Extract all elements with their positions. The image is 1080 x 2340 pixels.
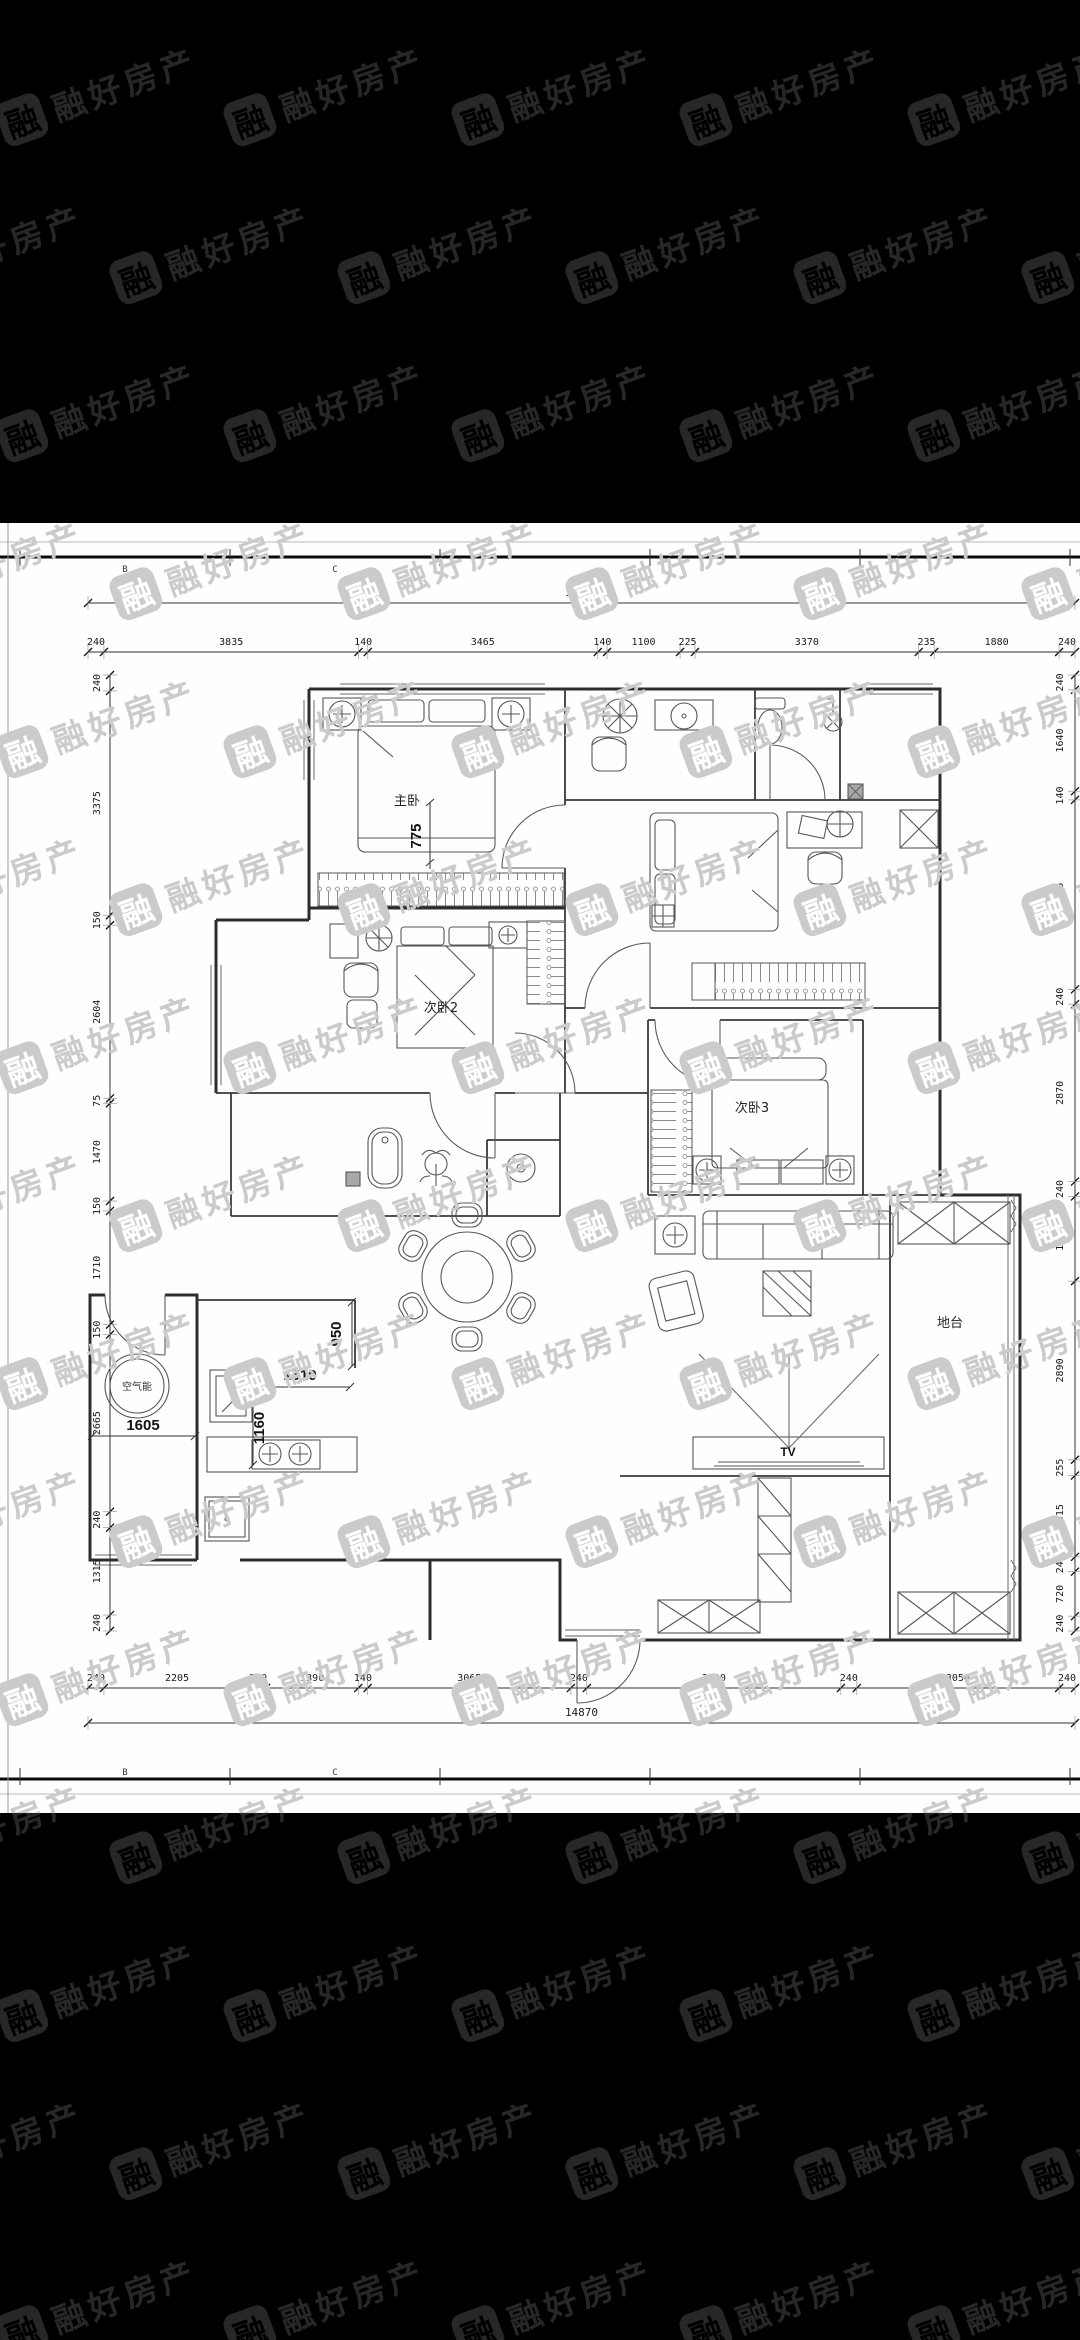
watermark-logo-icon: 融 xyxy=(676,1986,735,2045)
svg-text:240: 240 xyxy=(87,1673,105,1684)
watermark: 融融好房产 xyxy=(562,192,774,308)
svg-text:1470: 1470 xyxy=(92,1140,103,1164)
watermark: 融融好房产 xyxy=(676,1930,888,2046)
watermark-logo-icon: 融 xyxy=(334,1828,393,1887)
watermark: 融融好房产 xyxy=(448,34,660,150)
svg-text:235: 235 xyxy=(917,637,935,648)
svg-text:3370: 3370 xyxy=(795,637,819,648)
svg-text:2205: 2205 xyxy=(165,1673,189,1684)
svg-text:240: 240 xyxy=(1055,1615,1066,1633)
watermark-text: 融好房产 xyxy=(273,34,432,131)
watermark-text: 融好房产 xyxy=(843,192,1002,289)
vanity-room xyxy=(592,699,713,771)
svg-text:225: 225 xyxy=(679,637,697,648)
svg-text:1640: 1640 xyxy=(1055,728,1066,752)
svg-text:240: 240 xyxy=(92,674,103,692)
watermark: 融融好房产 xyxy=(106,192,318,308)
watermark-layer: 融融好房产融融好房产融融好房产融融好房产融融好房产融融好房产融融好房产融融好房产… xyxy=(0,1813,1080,2340)
watermark-logo-icon: 融 xyxy=(676,406,735,465)
watermark-logo-icon: 融 xyxy=(904,406,963,465)
watermark-logo-icon: 融 xyxy=(0,406,51,465)
watermark: 融融好房产 xyxy=(448,350,660,466)
watermark-text: 融好房产 xyxy=(501,2246,660,2340)
watermark: 融融好房产 xyxy=(0,1930,204,2046)
bedroom3-furniture xyxy=(693,1058,854,1184)
watermark: 融融好房产 xyxy=(1018,2088,1080,2204)
svg-text:1390: 1390 xyxy=(300,1673,324,1684)
platform-cabinets xyxy=(898,1202,1010,1634)
svg-text:240: 240 xyxy=(1055,988,1066,1006)
watermark: 融融好房产 xyxy=(676,350,888,466)
watermark: 融融好房产 xyxy=(106,2088,318,2204)
watermark: 融融好房产 xyxy=(0,508,90,523)
svg-text:1315: 1315 xyxy=(1055,1504,1066,1528)
watermark-logo-icon: 融 xyxy=(790,1828,849,1887)
svg-text:3835: 3835 xyxy=(219,637,243,648)
svg-text:240: 240 xyxy=(249,1673,267,1684)
tv-label: TV xyxy=(780,1445,795,1459)
watermark-logo-icon: 融 xyxy=(676,90,735,149)
watermark-logo-icon: 融 xyxy=(904,1986,963,2045)
watermark-text: 融好房产 xyxy=(615,2088,774,2185)
watermark-logo-icon: 融 xyxy=(0,90,51,149)
svg-text:3050: 3050 xyxy=(946,1673,970,1684)
watermark-text: 融好房产 xyxy=(1071,508,1080,523)
watermark: 融融好房产 xyxy=(562,1813,774,1888)
watermark-text: 融好房产 xyxy=(843,1813,1002,1869)
watermark-logo-icon: 融 xyxy=(562,2144,621,2203)
watermark-text: 融好房产 xyxy=(45,34,204,131)
watermark: 融融好房产 xyxy=(1018,508,1080,523)
watermark-text: 融好房产 xyxy=(0,508,90,523)
wardrobes-v xyxy=(527,921,692,1192)
watermark-text: 融好房产 xyxy=(387,2088,546,2185)
svg-text:255: 255 xyxy=(1055,1459,1066,1477)
watermark: 融融好房产 xyxy=(448,1930,660,2046)
watermark-text: 融好房产 xyxy=(729,350,888,447)
watermark: 融融好房产 xyxy=(0,1813,90,1888)
svg-text:C: C xyxy=(332,565,337,575)
watermark-logo-icon: 融 xyxy=(0,2302,51,2340)
watermark: 融融好房产 xyxy=(676,34,888,150)
watermark-text: 融好房产 xyxy=(45,1930,204,2027)
heat-pump-label: 空气能 xyxy=(122,1380,152,1393)
svg-text:140: 140 xyxy=(354,637,372,648)
master-door-dim xyxy=(426,799,434,869)
watermark-text: 融好房产 xyxy=(387,1813,546,1869)
svg-text:3465: 3465 xyxy=(471,637,495,648)
svg-text:2890: 2890 xyxy=(1055,1358,1066,1382)
watermark-logo-icon: 融 xyxy=(676,2302,735,2340)
watermark: 融融好房产 xyxy=(334,192,546,308)
watermark: 融融好房产 xyxy=(220,1930,432,2046)
bathroom2-fixtures xyxy=(346,1128,535,1188)
svg-text:14870: 14870 xyxy=(565,1706,598,1719)
watermark-text: 融好房产 xyxy=(0,192,90,289)
watermark-logo-icon: 融 xyxy=(334,2144,393,2203)
svg-text:720: 720 xyxy=(1055,1585,1066,1603)
watermark: 融融好房产 xyxy=(334,1813,546,1888)
svg-text:240: 240 xyxy=(92,1511,103,1529)
watermark-layer: 融融好房产融融好房产融融好房产融融好房产融融好房产融融好房产融融好房产融融好房产… xyxy=(0,0,1080,523)
watermark-text: 融好房产 xyxy=(615,192,774,289)
svg-text:240: 240 xyxy=(1055,673,1066,691)
watermark-text: 融好房产 xyxy=(273,350,432,447)
room-label-bedroom2: 次卧2 xyxy=(424,1000,458,1016)
watermark: 融融好房产 xyxy=(904,1930,1080,2046)
svg-text:240: 240 xyxy=(570,1673,588,1684)
svg-text:1880: 1880 xyxy=(985,637,1009,648)
watermark: 融融好房产 xyxy=(904,2246,1080,2340)
bathroom-top xyxy=(755,698,863,799)
room-label-bedroom3: 次卧3 xyxy=(735,1100,769,1116)
svg-text:140: 140 xyxy=(354,1673,372,1684)
watermark-logo-icon: 融 xyxy=(1018,248,1077,307)
watermark-text: 融好房产 xyxy=(1071,2088,1080,2185)
watermark: 融融好房产 xyxy=(790,192,1002,308)
floor-plan-image[interactable]: BBCC xyxy=(0,523,1080,1813)
phone-screen: 融融好房产融融好房产融融好房产融融好房产融融好房产融融好房产融融好房产融融好房产… xyxy=(0,0,1080,2340)
watermark-logo-icon: 融 xyxy=(904,2302,963,2340)
watermark-text: 融好房产 xyxy=(615,1813,774,1869)
watermark-text: 融好房产 xyxy=(957,350,1080,447)
watermark: 融融好房产 xyxy=(562,2088,774,2204)
watermark-text: 融好房产 xyxy=(843,2088,1002,2185)
svg-text:75: 75 xyxy=(92,1095,103,1107)
watermark-text: 融好房产 xyxy=(729,34,888,131)
entry-cabinets xyxy=(658,1478,791,1633)
svg-text:2870: 2870 xyxy=(1055,1081,1066,1105)
svg-text:C: C xyxy=(332,1768,337,1778)
watermark-text: 融好房产 xyxy=(1071,1813,1080,1869)
watermark: 融融好房产 xyxy=(562,508,774,523)
watermark-text: 融好房产 xyxy=(501,34,660,131)
svg-text:140: 140 xyxy=(593,637,611,648)
svg-text:2604: 2604 xyxy=(92,1000,103,1024)
watermark-text: 融好房产 xyxy=(957,1930,1080,2027)
watermark-logo-icon: 融 xyxy=(106,1828,165,1887)
watermark: 融融好房产 xyxy=(790,508,1002,523)
watermark: 融融好房产 xyxy=(106,508,318,523)
bedroom2-furniture xyxy=(330,922,527,1048)
watermark: 融融好房产 xyxy=(676,2246,888,2340)
watermark: 融融好房产 xyxy=(220,2246,432,2340)
watermark: 融融好房产 xyxy=(1018,1813,1080,1888)
watermark-logo-icon: 融 xyxy=(220,90,279,149)
watermark-logo-icon: 融 xyxy=(562,248,621,307)
watermark-text: 融好房产 xyxy=(615,508,774,523)
watermark-text: 融好房产 xyxy=(957,34,1080,131)
svg-text:150: 150 xyxy=(92,911,103,929)
watermark-logo-icon: 融 xyxy=(0,1986,51,2045)
svg-text:1315: 1315 xyxy=(92,1559,103,1583)
dimension-annotations: 1487024038351403465140110022533702351880… xyxy=(84,586,1080,1730)
watermark: 融融好房产 xyxy=(0,350,204,466)
watermark-logo-icon: 融 xyxy=(1018,1828,1077,1887)
watermark-logo-icon: 融 xyxy=(904,90,963,149)
watermark-text: 融好房产 xyxy=(387,192,546,289)
svg-text:140: 140 xyxy=(1055,787,1066,805)
watermark: 融融好房产 xyxy=(904,350,1080,466)
svg-text:240: 240 xyxy=(92,1614,103,1632)
watermark-text: 融好房产 xyxy=(387,508,546,523)
svg-text:3830: 3830 xyxy=(702,1673,726,1684)
watermark: 融融好房产 xyxy=(220,34,432,150)
svg-text:B: B xyxy=(122,1768,127,1778)
svg-text:150: 150 xyxy=(92,1197,103,1215)
svg-text:1370: 1370 xyxy=(1055,1227,1066,1251)
dim-1510: 1510 xyxy=(283,1367,316,1384)
watermark: 融融好房产 xyxy=(790,2088,1002,2204)
watermark-text: 融好房产 xyxy=(159,1813,318,1869)
watermark-text: 融好房产 xyxy=(159,2088,318,2185)
watermark-text: 融好房产 xyxy=(729,2246,888,2340)
watermark: 融融好房产 xyxy=(0,192,90,308)
watermark-text: 融好房产 xyxy=(45,350,204,447)
watermark-logo-icon: 融 xyxy=(220,2302,279,2340)
watermark-text: 融好房产 xyxy=(957,2246,1080,2340)
watermark-text: 融好房产 xyxy=(273,1930,432,2027)
letterbox-top: 融融好房产融融好房产融融好房产融融好房产融融好房产融融好房产融融好房产融融好房产… xyxy=(0,0,1080,523)
watermark: 融融好房产 xyxy=(220,350,432,466)
watermark-text: 融好房产 xyxy=(1071,192,1080,289)
svg-text:B: B xyxy=(122,565,127,575)
shelf xyxy=(692,963,715,1000)
living-room-furniture xyxy=(647,1211,893,1469)
svg-text:240: 240 xyxy=(87,637,105,648)
dim-775: 775 xyxy=(408,823,425,848)
svg-text:3375: 3375 xyxy=(92,791,103,815)
svg-text:1100: 1100 xyxy=(632,637,656,648)
svg-text:14870: 14870 xyxy=(565,586,598,599)
svg-text:240: 240 xyxy=(1055,1180,1066,1198)
dim-1605: 1605 xyxy=(126,1417,159,1434)
watermark: 融融好房产 xyxy=(0,2246,204,2340)
watermark: 融融好房产 xyxy=(334,2088,546,2204)
room-label-master: 主卧 xyxy=(394,794,420,809)
watermark: 融融好房产 xyxy=(448,2246,660,2340)
floor-plan-drawing: BBCC xyxy=(0,523,1080,1813)
watermark-logo-icon: 融 xyxy=(790,248,849,307)
watermark-logo-icon: 融 xyxy=(106,2144,165,2203)
watermark-text: 融好房产 xyxy=(159,192,318,289)
room-label-platform: 地台 xyxy=(937,1316,963,1331)
master-bedroom-furniture xyxy=(323,698,530,852)
svg-text:3065: 3065 xyxy=(457,1673,481,1684)
svg-text:1710: 1710 xyxy=(92,1256,103,1280)
watermark-logo-icon: 融 xyxy=(220,1986,279,2045)
watermark-text: 融好房产 xyxy=(0,1813,90,1869)
dim-950: 950 xyxy=(328,1321,345,1346)
watermark-text: 融好房产 xyxy=(843,508,1002,523)
watermark-logo-icon: 融 xyxy=(562,1828,621,1887)
watermark-logo-icon: 融 xyxy=(220,406,279,465)
watermark-text: 融好房产 xyxy=(729,1930,888,2027)
svg-text:2665: 2665 xyxy=(92,1411,103,1435)
watermark-text: 融好房产 xyxy=(273,2246,432,2340)
watermark-logo-icon: 融 xyxy=(448,2302,507,2340)
watermark: 融融好房产 xyxy=(334,508,546,523)
watermark: 融融好房产 xyxy=(106,1813,318,1888)
svg-text:3065: 3065 xyxy=(1055,883,1066,907)
letterbox-bottom: 融融好房产融融好房产融融好房产融融好房产融融好房产融融好房产融融好房产融融好房产… xyxy=(0,1813,1080,2340)
svg-text:240: 240 xyxy=(840,1673,858,1684)
svg-text:150: 150 xyxy=(92,1321,103,1339)
watermark-logo-icon: 融 xyxy=(106,248,165,307)
watermark-text: 融好房产 xyxy=(159,508,318,523)
watermark-logo-icon: 融 xyxy=(448,90,507,149)
watermark-logo-icon: 融 xyxy=(1018,2144,1077,2203)
watermark-text: 融好房产 xyxy=(45,2246,204,2340)
watermark-logo-icon: 融 xyxy=(790,2144,849,2203)
watermark: 融融好房产 xyxy=(0,2088,90,2204)
dim-1160: 1160 xyxy=(251,1412,268,1445)
watermark: 融融好房产 xyxy=(790,1813,1002,1888)
svg-text:240: 240 xyxy=(1058,1673,1076,1684)
bedroom1-furniture xyxy=(650,810,938,931)
watermark-text: 融好房产 xyxy=(501,1930,660,2027)
svg-text:240: 240 xyxy=(1055,1555,1066,1573)
watermark-logo-icon: 融 xyxy=(448,406,507,465)
watermark: 融融好房产 xyxy=(904,34,1080,150)
watermark-logo-icon: 融 xyxy=(448,1986,507,2045)
watermark-text: 融好房产 xyxy=(501,350,660,447)
watermark-logo-icon: 融 xyxy=(334,248,393,307)
svg-text:240: 240 xyxy=(1058,637,1076,648)
dining-table xyxy=(395,1203,539,1351)
watermark-text: 融好房产 xyxy=(0,2088,90,2185)
wardrobes xyxy=(318,873,865,1000)
watermark: 融融好房产 xyxy=(1018,192,1080,308)
watermark: 融融好房产 xyxy=(0,34,204,150)
